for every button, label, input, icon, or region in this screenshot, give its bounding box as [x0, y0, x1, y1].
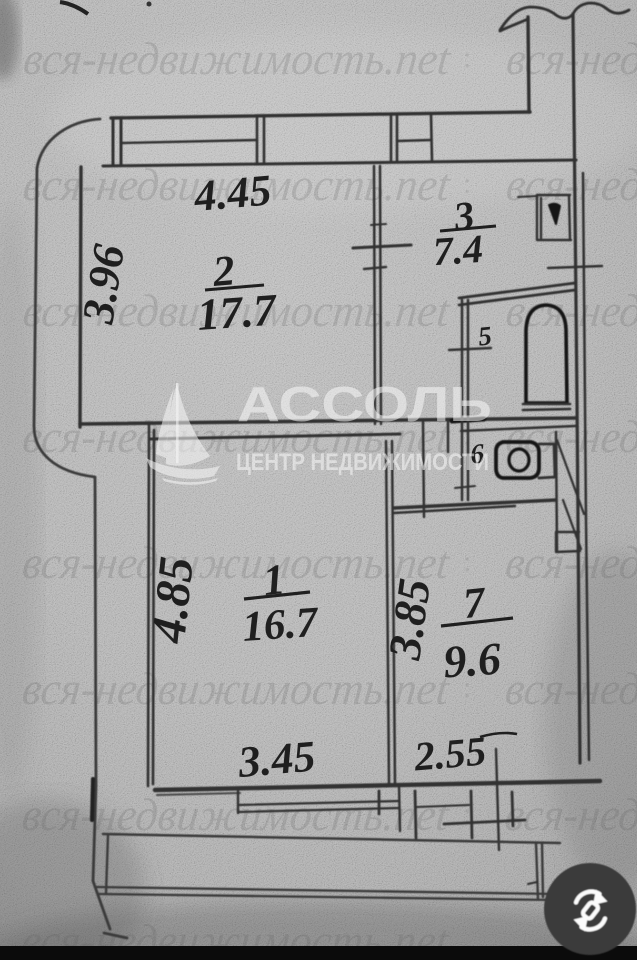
svg-text:3.45: 3.45: [235, 731, 317, 787]
svg-text::: :: [463, 545, 471, 578]
svg-text:вся-недвижимость.net: вся-недвижимость.net: [503, 789, 637, 840]
svg-text:вся-недвижимость.net: вся-недвижимость.net: [504, 285, 637, 336]
svg-text::: :: [463, 41, 471, 74]
svg-text:вся-недвижимость.net: вся-недвижимость.net: [20, 789, 452, 840]
svg-text:АССОЛЬ: АССОЛЬ: [237, 378, 492, 432]
svg-text:вся-недвижимость.net: вся-недвижимость.net: [504, 159, 637, 210]
svg-text:вся-недвижимость.net: вся-недвижимость.net: [503, 663, 637, 714]
svg-text:16.7: 16.7: [241, 599, 321, 651]
svg-text:4.85: 4.85: [140, 554, 204, 646]
svg-text:2.55: 2.55: [411, 727, 487, 779]
svg-text:вся-недвижимость.net: вся-недвижимость.net: [504, 33, 637, 84]
svg-text:17.7: 17.7: [196, 284, 280, 339]
svg-text:7.4: 7.4: [431, 226, 484, 274]
svg-text:вся-недвижимость.net: вся-недвижимость.net: [503, 537, 637, 588]
svg-text:4.45: 4.45: [191, 165, 273, 221]
svg-text:вся-недвижимость.net: вся-недвижимость.net: [21, 33, 453, 84]
svg-text:9.6: 9.6: [442, 633, 503, 688]
svg-text:ЦЕНТР НЕДВИЖИМОСТИ: ЦЕНТР НЕДВИЖИМОСТИ: [236, 449, 489, 476]
